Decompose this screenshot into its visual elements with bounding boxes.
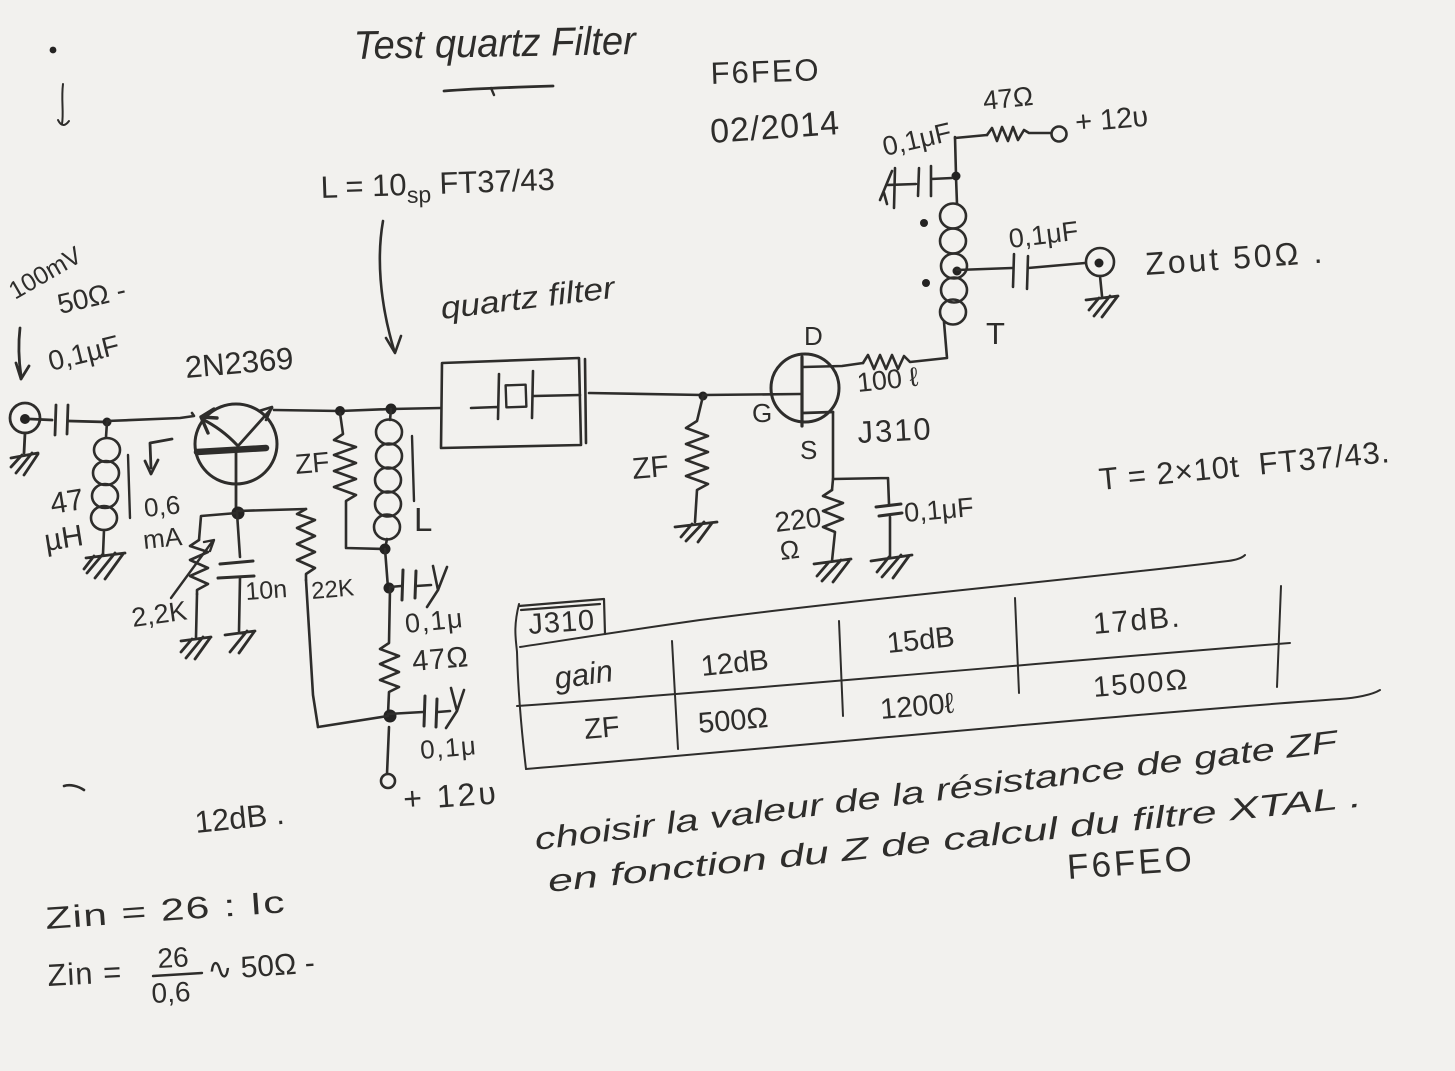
svg-text:0,6: 0,6	[142, 489, 181, 523]
svg-text:Zin =: Zin =	[47, 954, 124, 993]
svg-text:47Ω: 47Ω	[981, 81, 1034, 116]
svg-text:47Ω: 47Ω	[411, 641, 471, 678]
svg-text:500Ω: 500Ω	[697, 702, 770, 740]
svg-text:0,6: 0,6	[151, 976, 192, 1009]
svg-text:+ 12υ: + 12υ	[402, 774, 500, 817]
svg-text:+ 12υ: + 12υ	[1074, 101, 1150, 139]
svg-text:S: S	[800, 435, 817, 465]
svg-text:ZF: ZF	[294, 446, 331, 480]
svg-text:ZF: ZF	[583, 711, 621, 746]
svg-text:F6FEO: F6FEO	[710, 52, 821, 91]
svg-text:0,1μF: 0,1μF	[903, 492, 975, 528]
svg-text:100 ℓ: 100 ℓ	[855, 362, 919, 398]
svg-text:J310: J310	[857, 411, 934, 450]
svg-text:µH: µH	[42, 519, 86, 558]
svg-text:ZF: ZF	[631, 450, 670, 486]
svg-text:G: G	[752, 398, 772, 428]
svg-text:D: D	[804, 321, 823, 351]
svg-text:T: T	[986, 316, 1005, 351]
svg-text:J310: J310	[527, 604, 596, 641]
svg-text:mA: mA	[141, 521, 184, 555]
svg-text:10n: 10n	[244, 575, 288, 606]
svg-text:47: 47	[48, 483, 86, 521]
svg-text:1200ℓ: 1200ℓ	[879, 688, 956, 726]
svg-text:0,1μ: 0,1μ	[403, 603, 465, 639]
svg-text:Test quartz Filter: Test quartz Filter	[353, 19, 637, 68]
svg-text:Ω: Ω	[778, 534, 801, 566]
svg-text:L: L	[414, 501, 432, 538]
svg-text:220: 220	[773, 501, 823, 537]
svg-text:0,1μ: 0,1μ	[419, 730, 479, 765]
svg-text:22K: 22K	[310, 574, 355, 605]
svg-text:26: 26	[157, 941, 190, 974]
